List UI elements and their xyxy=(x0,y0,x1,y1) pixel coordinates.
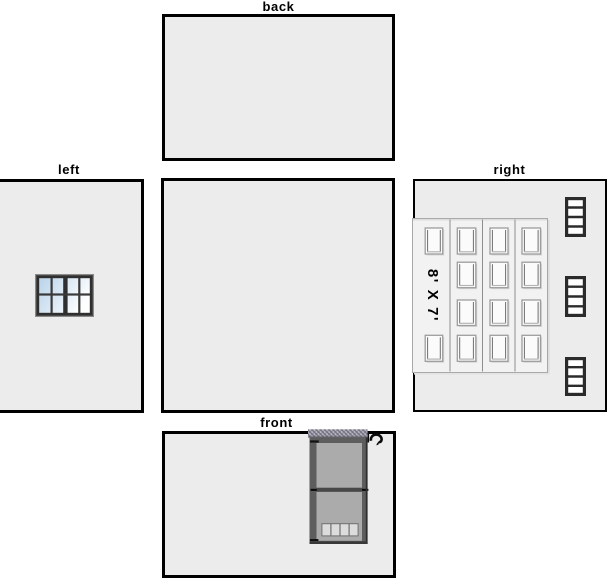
svg-text:8' X 7': 8' X 7' xyxy=(423,268,440,321)
